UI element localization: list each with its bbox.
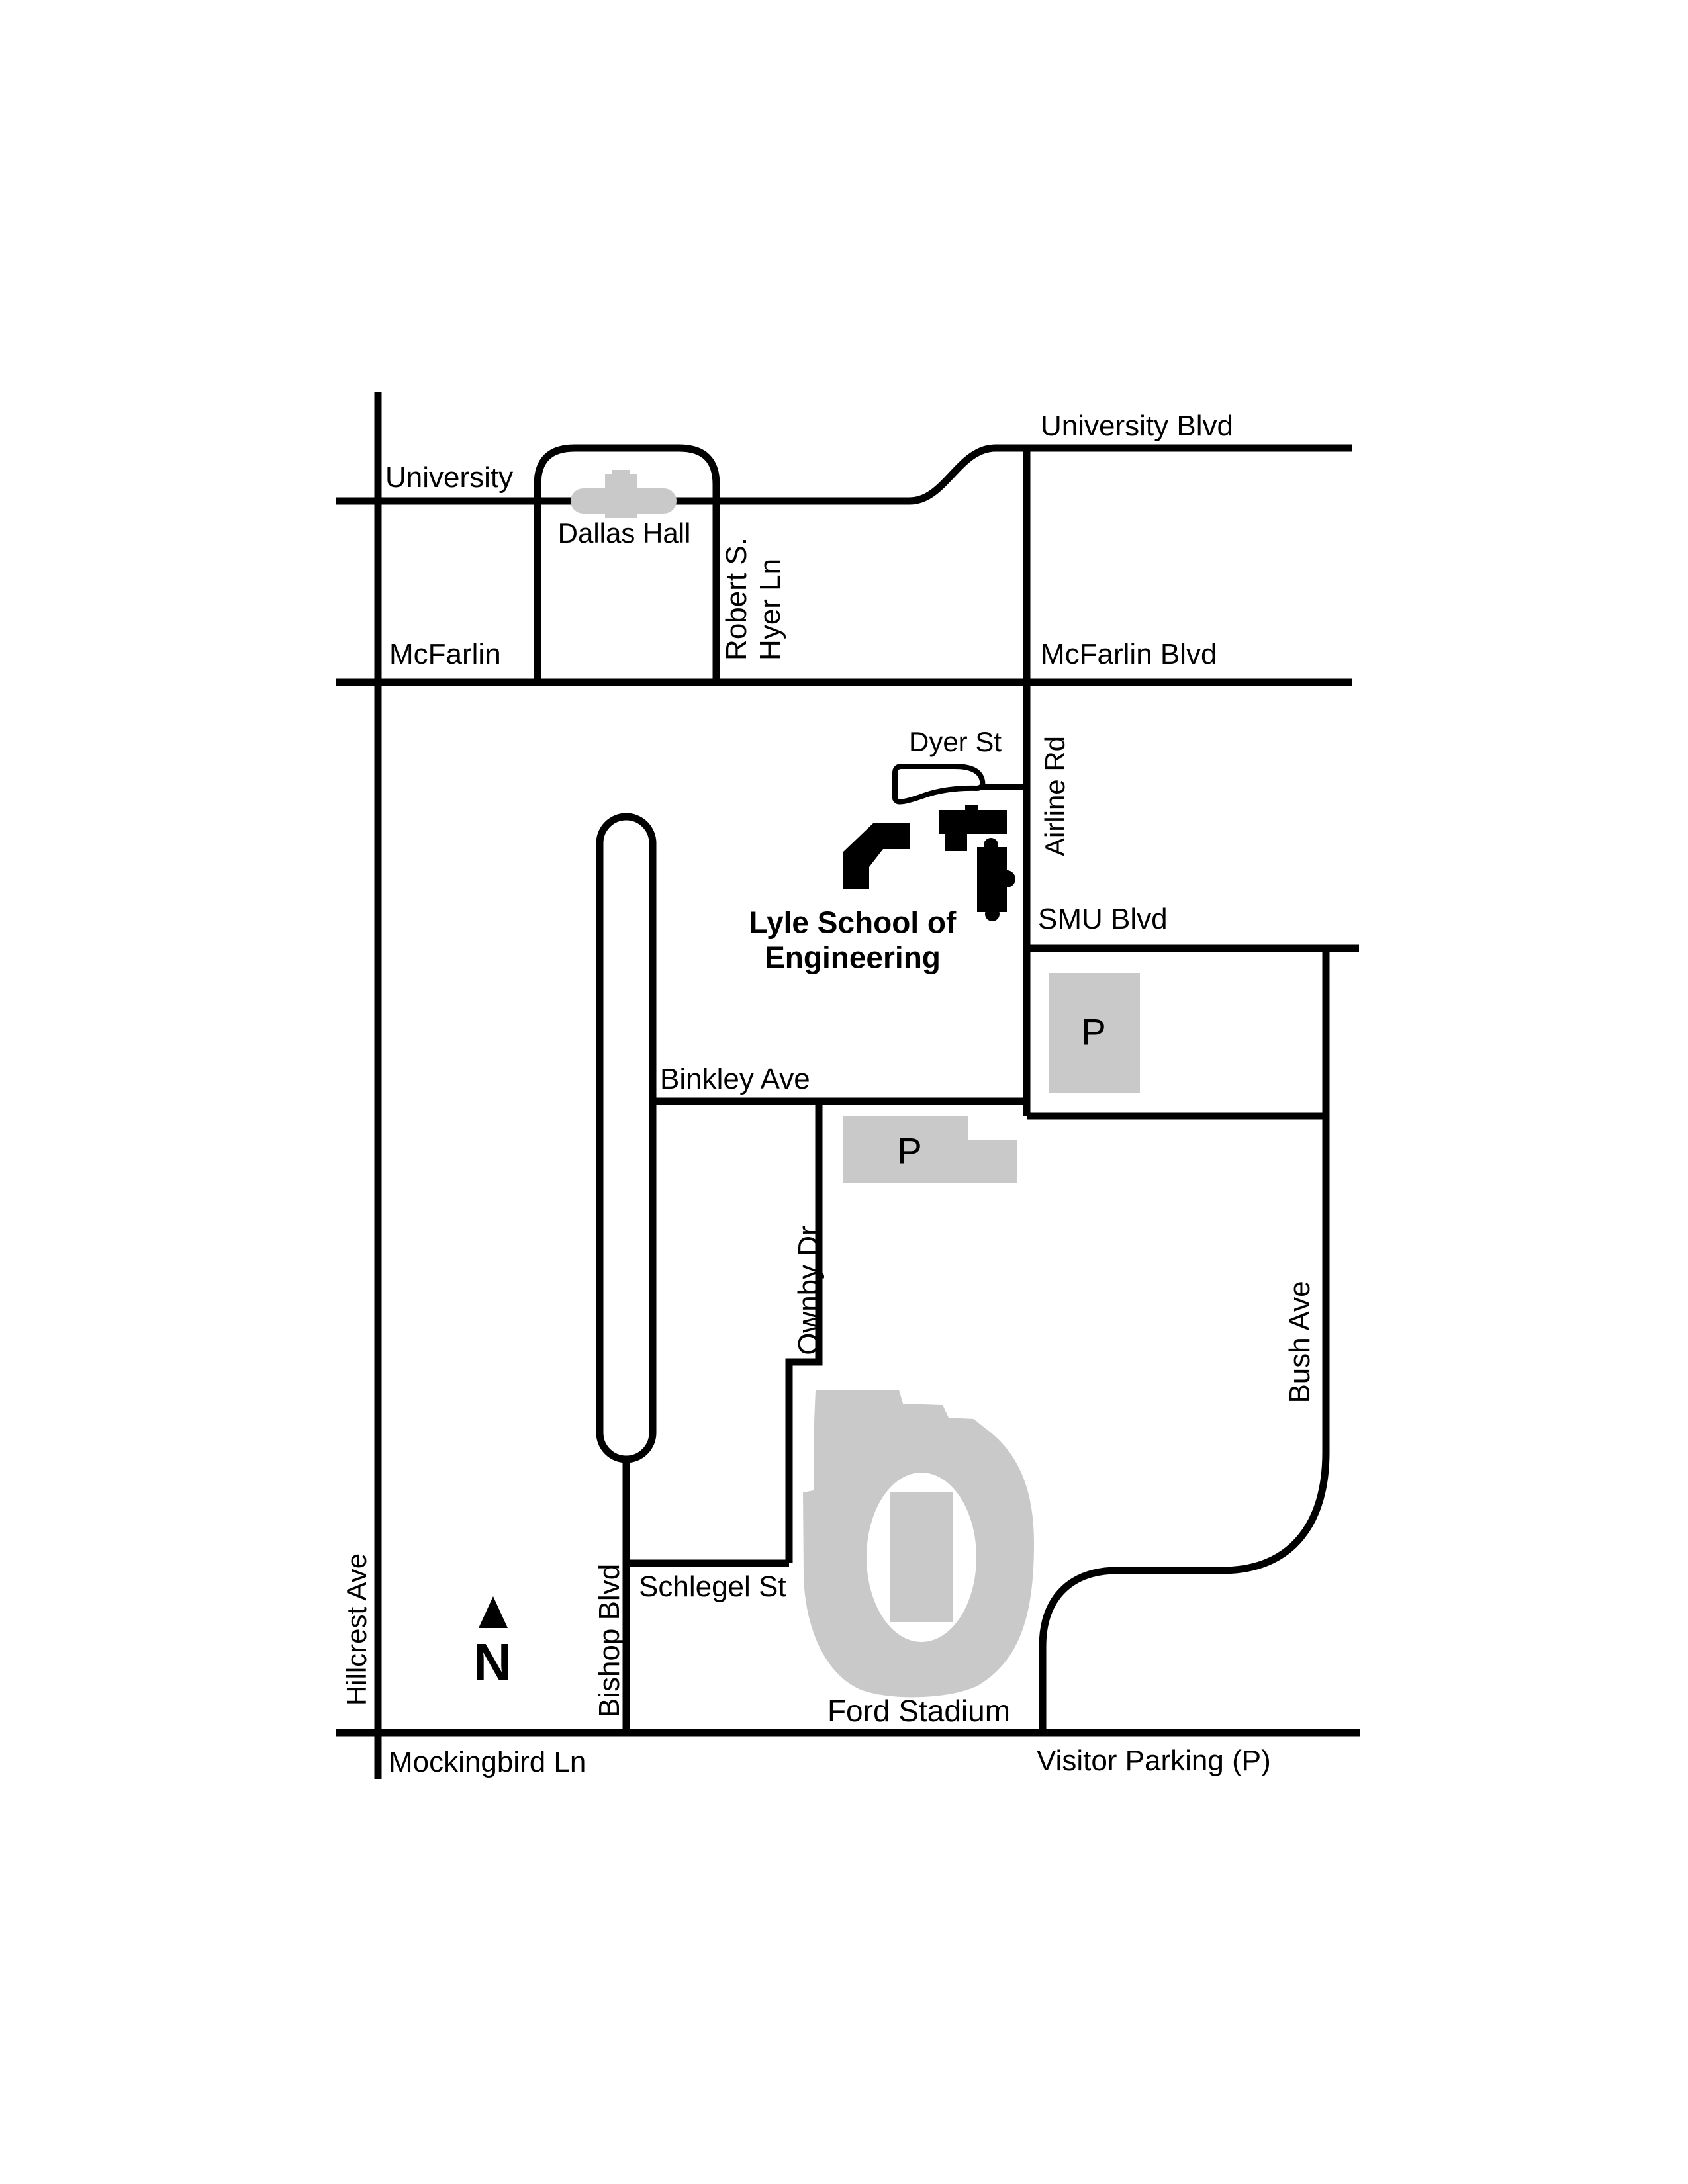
engineering-building-east-side xyxy=(998,870,1015,887)
campus-map-canvas xyxy=(0,0,1688,2184)
ford-stadium-shape xyxy=(803,1390,1034,1697)
label-bishop-blvd: Bishop Blvd xyxy=(594,1564,625,1717)
label-hillcrest-ave: Hillcrest Ave xyxy=(342,1553,371,1706)
label-ford-stadium: Ford Stadium xyxy=(827,1695,1010,1727)
label-smu-blvd: SMU Blvd xyxy=(1038,904,1168,934)
engineering-building-east-bottom xyxy=(985,907,1000,921)
label-mcfarlin-blvd: McFarlin Blvd xyxy=(1041,639,1217,670)
label-dyer-st: Dyer St xyxy=(909,727,1002,756)
engineering-building-west xyxy=(843,823,910,889)
label-binkley-ave: Binkley Ave xyxy=(660,1064,810,1095)
label-airline-rd: Airline Rd xyxy=(1041,736,1070,856)
north-arrow-icon xyxy=(479,1596,508,1628)
lyle-school-buildings xyxy=(843,805,1015,921)
label-lyle-line1: Lyle School of xyxy=(749,905,957,940)
label-robert-s-line2: Hyer Ln xyxy=(753,537,787,660)
road-bishop-blvd-oval xyxy=(600,817,653,1459)
dallas-hall-center xyxy=(605,474,637,518)
dallas-hall-building xyxy=(571,470,677,518)
label-visitor-parking-legend: Visitor Parking (P) xyxy=(1037,1746,1271,1776)
label-mockingbird-ln: Mockingbird Ln xyxy=(389,1747,586,1778)
north-arrow-label: N xyxy=(473,1635,512,1690)
label-robert-s-hyer-ln: Robert S. Hyer Ln xyxy=(720,537,787,660)
parking-lot-2 xyxy=(843,1116,1017,1183)
dallas-hall-dome xyxy=(612,470,630,478)
label-schlegel-st: Schlegel St xyxy=(639,1572,786,1602)
label-ownby-dr: Ownby Dr xyxy=(794,1226,824,1355)
label-bush-ave: Bush Ave xyxy=(1285,1281,1315,1403)
label-lyle-line2: Engineering xyxy=(749,940,957,976)
engineering-building-east-top xyxy=(984,838,998,852)
parking-p2-label: P xyxy=(897,1132,921,1171)
label-dallas-hall: Dallas Hall xyxy=(558,519,691,548)
label-mcfarlin: McFarlin xyxy=(389,639,501,670)
label-lyle-school: Lyle School of Engineering xyxy=(749,905,957,976)
label-university-blvd: University Blvd xyxy=(1041,411,1233,441)
parking-p1-label: P xyxy=(1081,1013,1105,1052)
campus-map-page: University Blvd University Dallas Hall R… xyxy=(0,0,1688,2184)
label-robert-s-line1: Robert S. xyxy=(720,537,753,660)
label-university: University xyxy=(385,463,513,493)
road-dyer-st-loop xyxy=(895,766,982,802)
ford-stadium-field xyxy=(890,1492,953,1622)
